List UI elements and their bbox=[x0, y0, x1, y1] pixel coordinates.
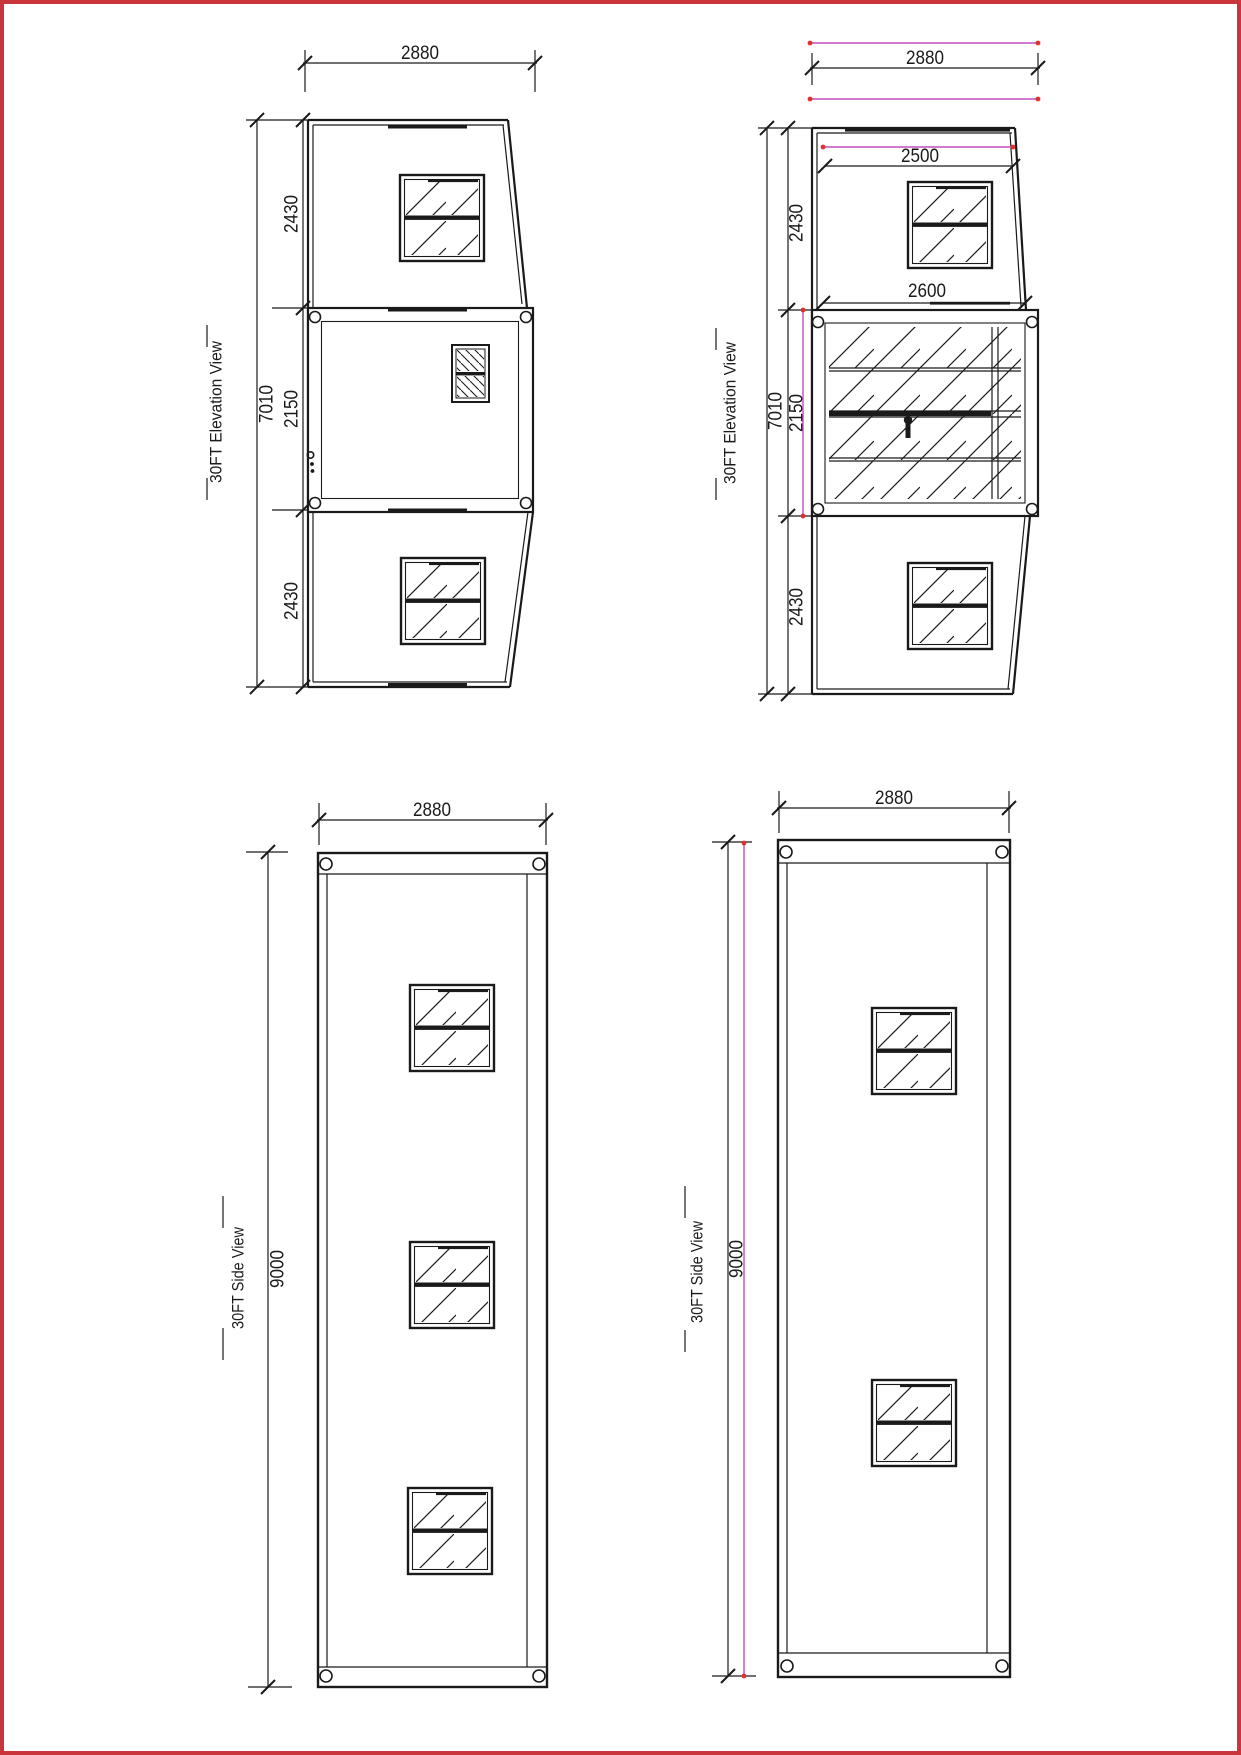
endpoint-marker bbox=[742, 1674, 747, 1679]
view-title-text: 30FT Elevation View bbox=[721, 341, 740, 484]
dim-width: 2880 bbox=[772, 788, 1016, 833]
window-symbol bbox=[401, 558, 485, 644]
endpoint-marker bbox=[1036, 41, 1041, 46]
corner-casting-icon bbox=[320, 858, 332, 870]
dim-overall-text: 7010 bbox=[766, 392, 787, 430]
dim-lower-text: 2430 bbox=[282, 582, 303, 620]
dim-width: 2880 bbox=[805, 48, 1045, 85]
window-symbol bbox=[872, 1008, 956, 1094]
side-right-view: 2880 9000 30FT Side Vi bbox=[685, 788, 1016, 1683]
dim-length: 9000 bbox=[712, 835, 756, 1683]
dim-overall-text: 7010 bbox=[257, 385, 278, 423]
building-outline bbox=[778, 840, 1010, 1677]
window-symbol bbox=[410, 985, 494, 1071]
endpoint-marker bbox=[742, 841, 747, 846]
corner-casting-icon bbox=[996, 846, 1008, 858]
drawing-canvas: 2880 2430 2150 2430 7010 bbox=[0, 0, 1241, 1755]
elevation-right-view: 2880 2430 2150 2430 7010 bbox=[716, 41, 1045, 701]
side-left-view: 2880 9000 30FT Side View bbox=[223, 800, 553, 1694]
corner-casting-icon bbox=[320, 1670, 332, 1682]
window-symbol bbox=[410, 1242, 494, 1328]
dim-upper-text: 2430 bbox=[787, 204, 808, 242]
endpoint-marker bbox=[808, 97, 813, 102]
view-title-text: 30FT Elevation View bbox=[207, 340, 226, 483]
endpoint-marker bbox=[1036, 97, 1041, 102]
corner-casting-icon bbox=[813, 504, 824, 515]
dim-width: 2880 bbox=[298, 43, 542, 92]
dim-floor-text: 2600 bbox=[908, 281, 946, 302]
corner-casting-icon bbox=[533, 858, 545, 870]
dim-width: 2880 bbox=[312, 800, 553, 845]
dim-upper-text: 2430 bbox=[282, 195, 303, 233]
window-symbol bbox=[872, 1380, 956, 1466]
dim-length-text: 9000 bbox=[727, 1240, 748, 1278]
dim-width-text: 2880 bbox=[906, 48, 944, 69]
elevation-left-view: 2880 2430 2150 2430 7010 bbox=[207, 43, 543, 694]
endpoint-marker bbox=[801, 308, 806, 313]
corner-casting-icon bbox=[521, 312, 532, 323]
view-title-text: 30FT Side View bbox=[229, 1226, 248, 1329]
endpoint-marker bbox=[1011, 145, 1016, 150]
corner-casting-icon bbox=[1027, 317, 1038, 328]
dim-length-text: 9000 bbox=[268, 1250, 289, 1288]
corner-casting-icon bbox=[310, 498, 321, 509]
window-symbol bbox=[408, 1488, 492, 1574]
dim-width-text: 2880 bbox=[875, 788, 913, 809]
dim-roof-text: 2500 bbox=[901, 146, 939, 167]
endpoint-marker bbox=[808, 41, 813, 46]
window-symbol bbox=[908, 563, 992, 649]
window-symbol bbox=[400, 175, 484, 261]
corner-casting-icon bbox=[813, 317, 824, 328]
window-symbol bbox=[908, 182, 992, 268]
dim-roof: 2500 bbox=[818, 145, 1020, 173]
corner-casting-icon bbox=[780, 846, 792, 858]
view-title-text: 30FT Side View bbox=[688, 1220, 707, 1323]
corner-casting-icon bbox=[1027, 504, 1038, 515]
dim-length: 9000 bbox=[246, 845, 292, 1694]
dim-heights: 2430 2150 2430 7010 bbox=[246, 113, 310, 694]
dim-heights: 2430 2150 2430 7010 bbox=[758, 121, 812, 701]
corner-casting-icon bbox=[310, 312, 321, 323]
dim-width-text: 2880 bbox=[413, 800, 451, 821]
sheet-border bbox=[2, 2, 1239, 1753]
endpoint-marker bbox=[801, 514, 806, 519]
corner-casting-icon bbox=[781, 1660, 793, 1672]
corner-casting-icon bbox=[996, 1660, 1008, 1672]
dim-lower-text: 2430 bbox=[787, 588, 808, 626]
view-title: 30FT Elevation View bbox=[207, 325, 226, 500]
corner-casting-icon bbox=[521, 498, 532, 509]
dim-width-text: 2880 bbox=[401, 43, 439, 64]
corner-casting-icon bbox=[533, 1670, 545, 1682]
view-title: 30FT Side View bbox=[223, 1196, 248, 1360]
dim-floor: 2600 bbox=[816, 281, 1032, 310]
endpoint-marker bbox=[821, 145, 826, 150]
drawing-sheet: 2880 2430 2150 2430 7010 bbox=[0, 0, 1241, 1755]
door-window-symbol bbox=[452, 345, 489, 402]
dim-middle-text: 2150 bbox=[787, 394, 808, 432]
dim-middle-text: 2150 bbox=[282, 390, 303, 428]
view-title: 30FT Side View bbox=[685, 1186, 707, 1352]
view-title: 30FT Elevation View bbox=[716, 328, 740, 500]
